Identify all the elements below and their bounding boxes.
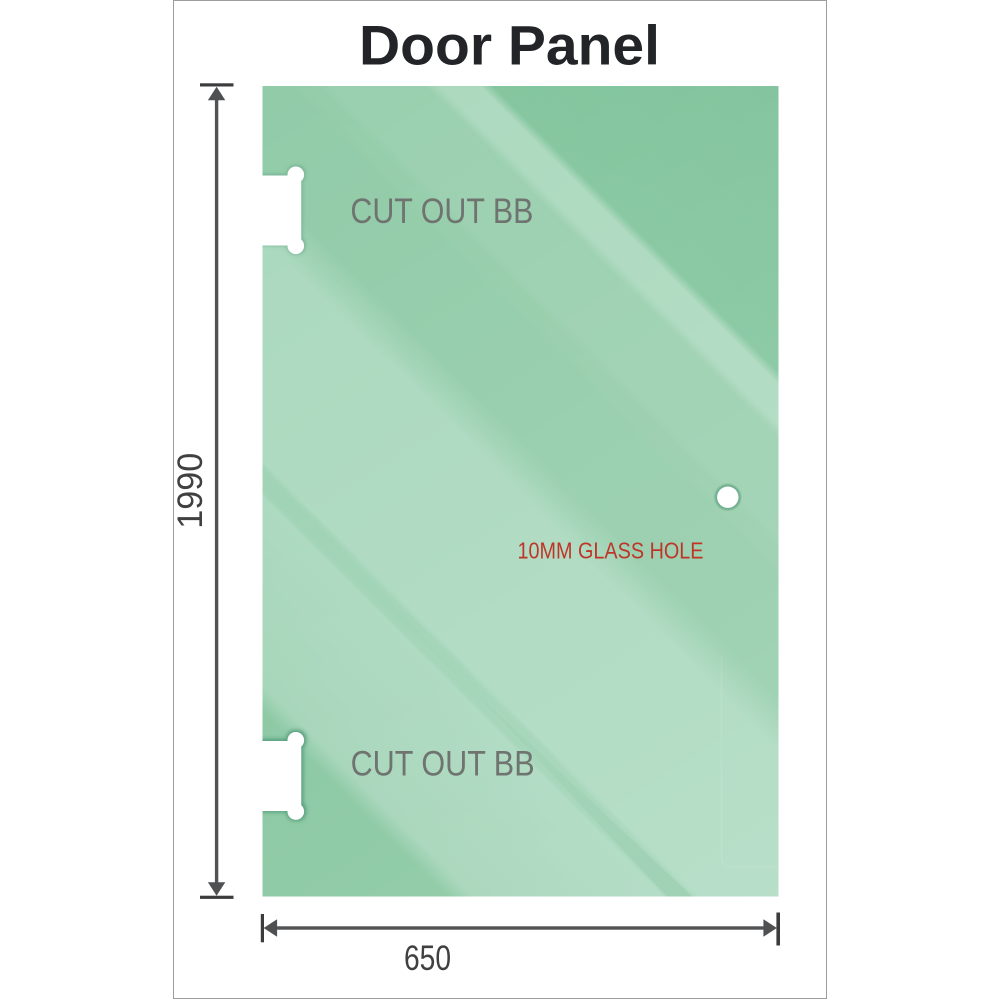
svg-text:CUT OUT BB: CUT OUT BB	[350, 191, 533, 231]
svg-text:Door Panel: Door Panel	[359, 14, 660, 77]
svg-text:CUT OUT BB: CUT OUT BB	[351, 743, 535, 783]
svg-text:10MM GLASS HOLE: 10MM GLASS HOLE	[518, 538, 704, 564]
svg-text:1990: 1990	[171, 453, 210, 529]
svg-text:650: 650	[404, 939, 451, 978]
